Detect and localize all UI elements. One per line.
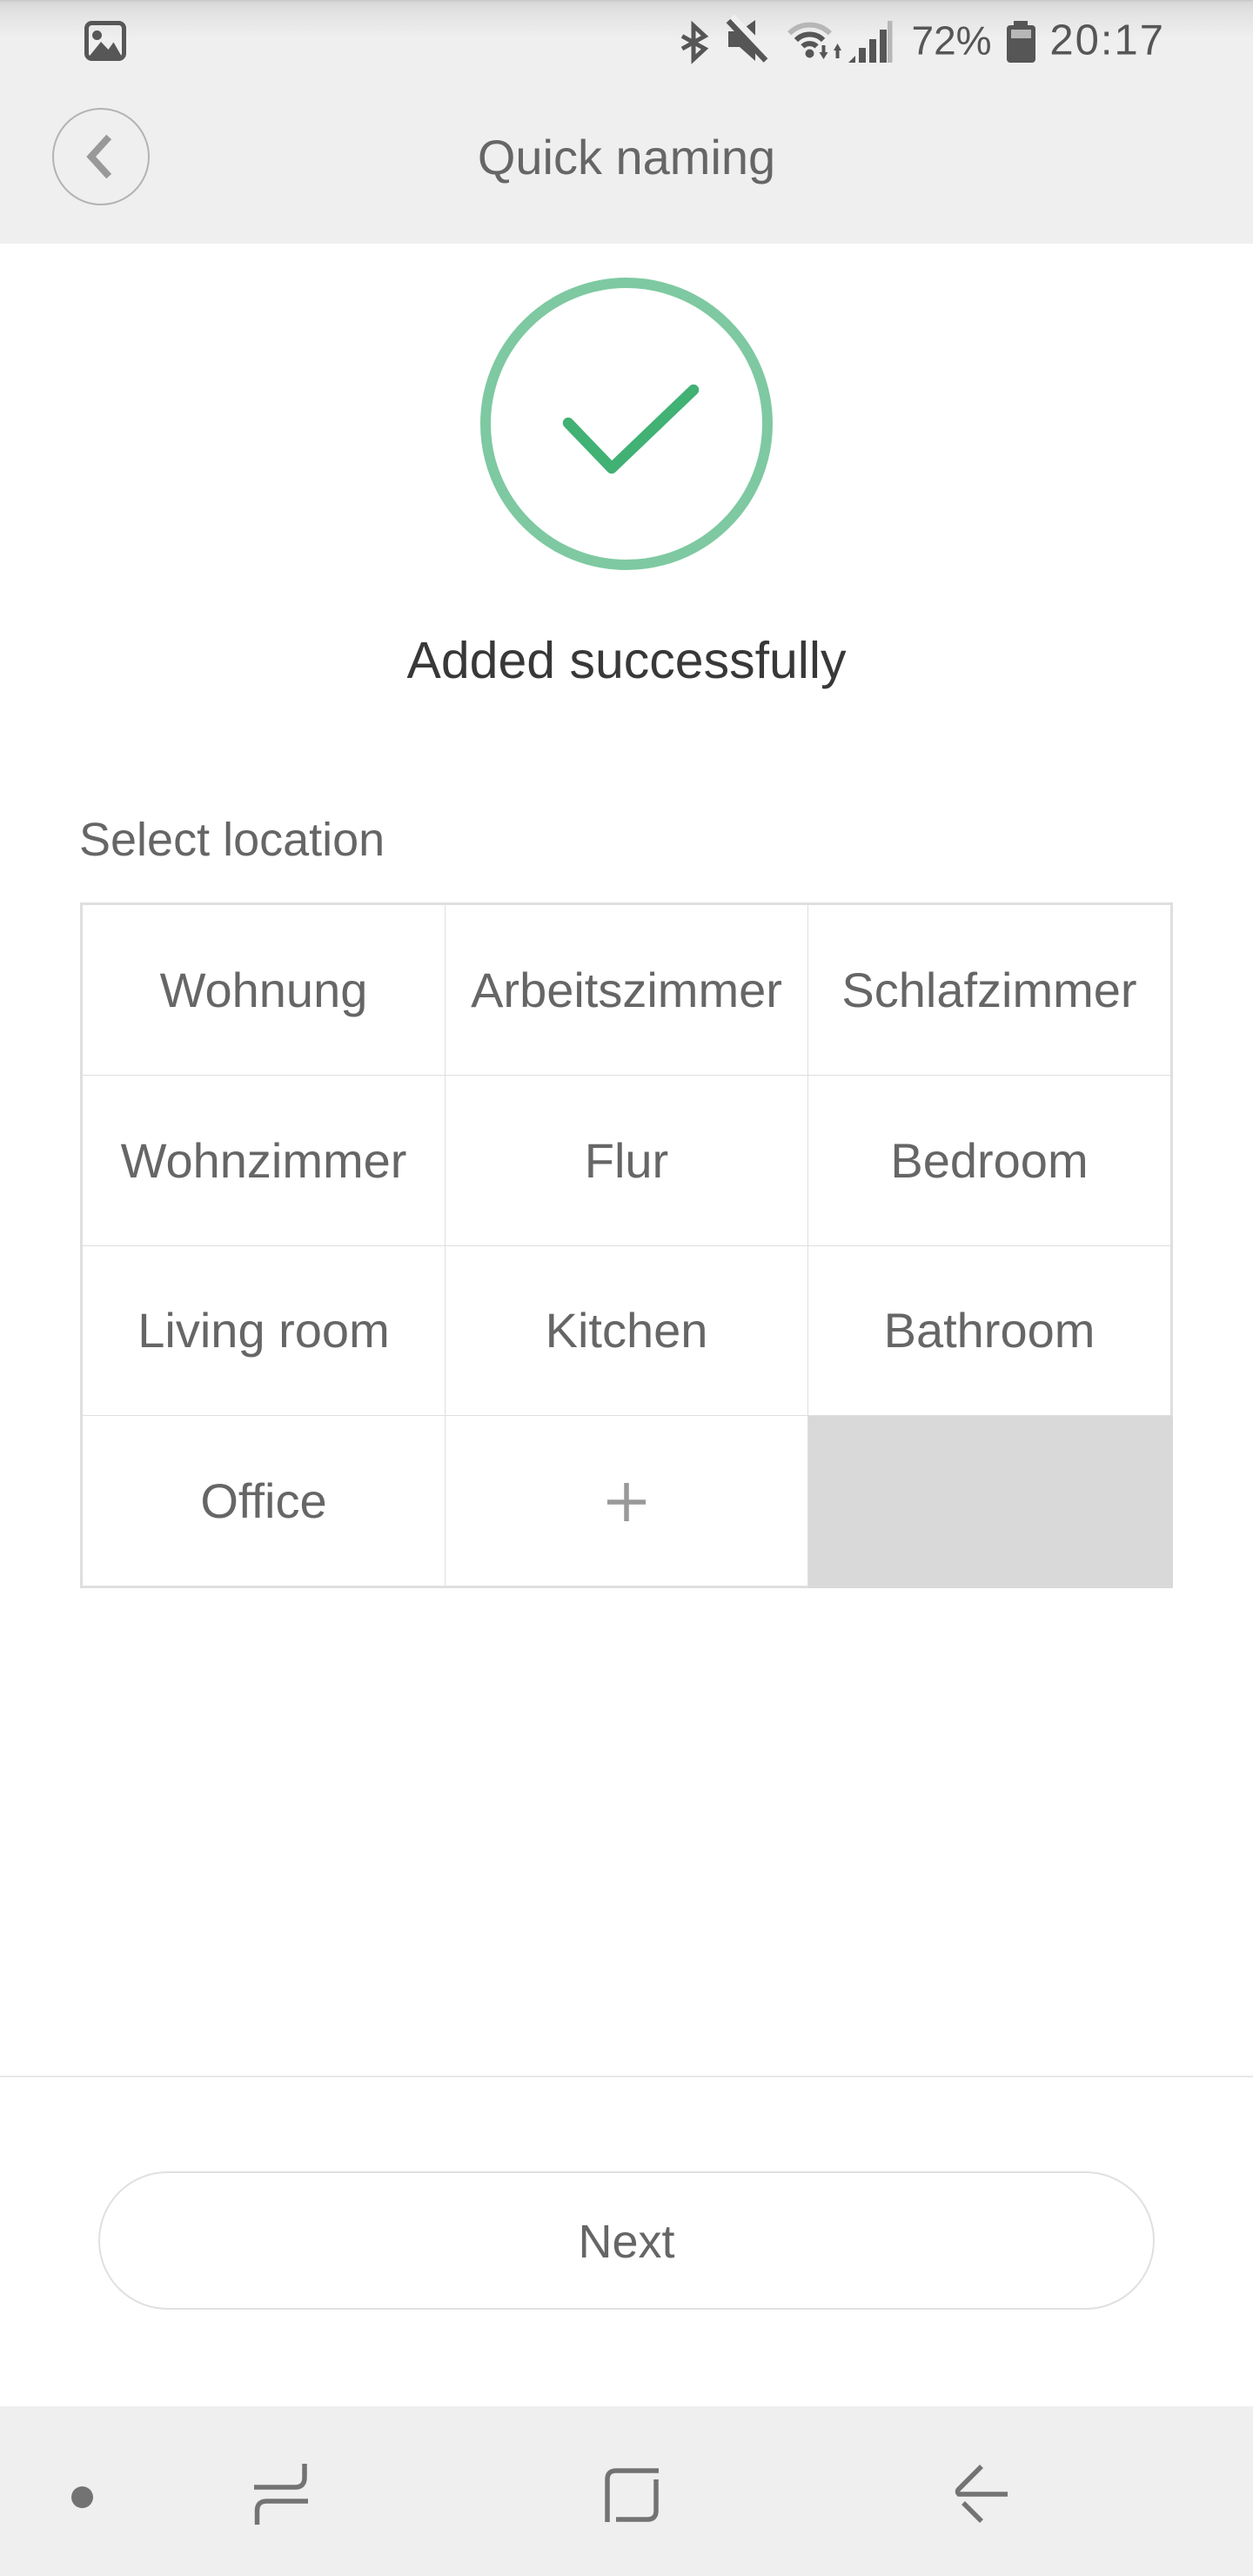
svg-text:20:17: 20:17	[1049, 17, 1165, 64]
svg-text:72%: 72%	[912, 18, 992, 64]
